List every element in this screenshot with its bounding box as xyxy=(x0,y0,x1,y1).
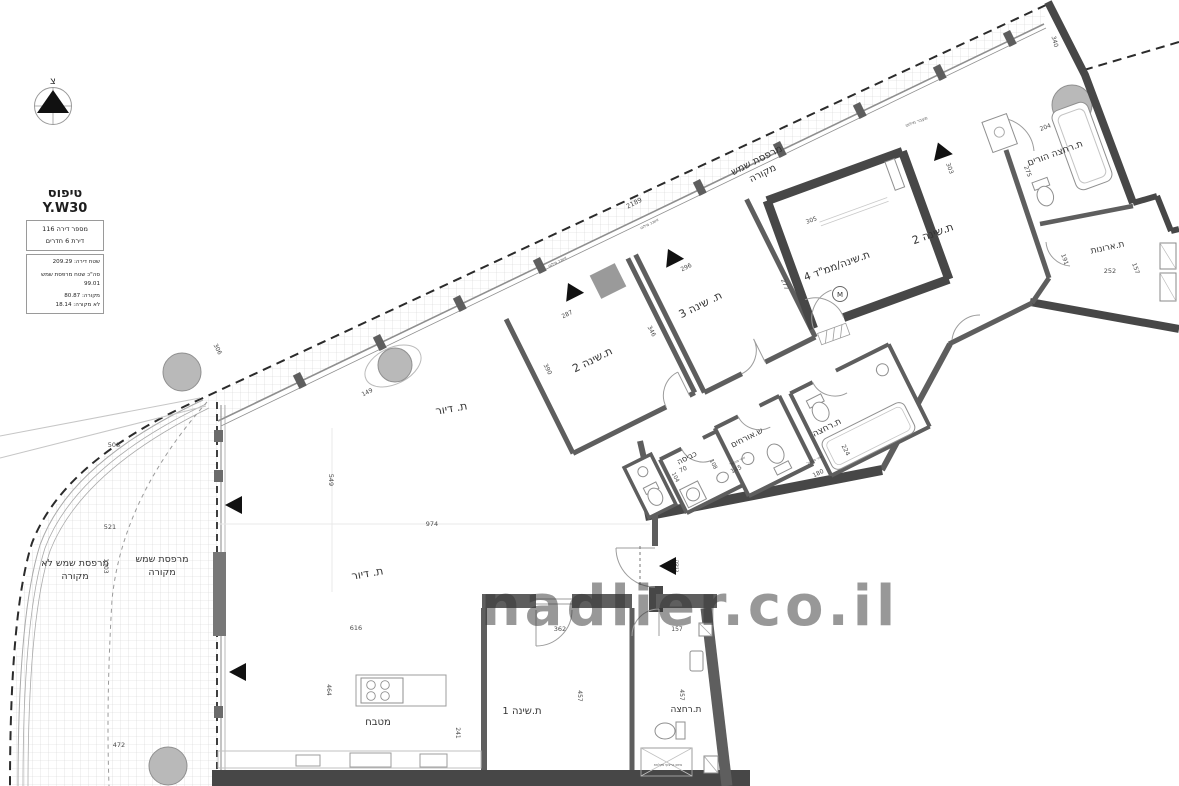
compass-north-label: צ xyxy=(50,76,56,87)
dim-liv-b: 616 xyxy=(350,624,362,632)
dim-closet-d: 191 xyxy=(1059,253,1070,266)
apartment-number: מספר דירה 116 xyxy=(29,224,101,236)
balcony-total-value: 99.01 xyxy=(30,280,100,289)
label-bedroom3: ת. שינה 3 xyxy=(677,289,724,321)
dim-kit-h: 464 xyxy=(325,684,332,696)
dim-liv-w: 974 xyxy=(426,520,438,528)
dim-bal-3: 472 xyxy=(113,741,125,749)
columns xyxy=(149,85,1092,785)
apartment-rooms: דירת 6 חדרים xyxy=(29,236,101,248)
label-balcony-uncov-1: מרפסת שמש לא xyxy=(41,558,109,569)
label-bedroom2-mid: ת.שינה 2 xyxy=(570,344,614,375)
dim-b2m-top: 287 xyxy=(561,309,575,320)
apartment-info-box: מספר דירה 116 דירת 6 חדרים xyxy=(26,220,104,251)
dim-b2m-hl: 390 xyxy=(542,363,554,377)
dim-bal-2: 521 xyxy=(104,523,116,531)
dim-bal-v: 1103 xyxy=(102,558,109,573)
window-marker-icon xyxy=(659,244,684,267)
note-escape-3: מעבר מילוט xyxy=(905,116,929,129)
kitchen-fixtures xyxy=(218,675,481,768)
label-kitchen: מטבח xyxy=(365,717,391,728)
balcony-covered-area: מקורה: 80.87 xyxy=(30,292,100,301)
label-closet-room: ת.ארונות xyxy=(1090,240,1126,257)
bedroom3-walls xyxy=(636,199,816,392)
dim-pb-top: 204 xyxy=(1039,122,1052,133)
sink-icon xyxy=(420,754,447,767)
window-marker-icon xyxy=(225,496,242,514)
note-escape-2: אשנב מילוט xyxy=(639,217,660,231)
note-shower: סימון בריצוף מקלחת xyxy=(654,763,682,767)
mamad-m-symbol: M xyxy=(833,287,848,302)
dim-b3-top: 296 xyxy=(680,262,694,273)
entry-arrow-icon xyxy=(659,557,676,575)
plan-type-title: טיפוס Y.W30 xyxy=(26,186,104,216)
label-living-2: ת. דיור xyxy=(351,564,385,582)
label-living-1: ת. דיור xyxy=(435,399,469,417)
dim-liv-l: 549 xyxy=(327,474,335,486)
window-marker-icon xyxy=(229,663,246,681)
apartment-area: שטח דירה: 209.29 xyxy=(30,258,100,267)
dim-b2m-hr: 346 xyxy=(646,325,658,339)
label-balcony-uncov-2: מקורה xyxy=(61,571,88,582)
dim-b2t-h: 303 xyxy=(944,162,955,175)
dim-b1-d: 241 xyxy=(454,727,461,739)
dim-bb-h: 457 xyxy=(678,689,685,701)
dim-b1-h: 457 xyxy=(576,690,583,702)
window-marker-icon xyxy=(929,139,953,161)
floorplan-canvas: M xyxy=(0,0,1179,786)
dim-closet-h: 157 xyxy=(1130,262,1141,275)
area-info-box: שטח דירה: 209.29 סה"כ שטח מרפסת שמש 99.0… xyxy=(26,254,104,313)
dim-ne: 340 xyxy=(1050,35,1060,48)
title-block: טיפוס Y.W30 מספר דירה 116 דירת 6 חדרים ש… xyxy=(26,186,104,314)
label-bottom-bath: ת.רחצה xyxy=(671,705,702,715)
watermark-text: nadlier.co.il xyxy=(481,574,899,639)
toilet-icon xyxy=(1032,177,1056,208)
dim-mamad-top: 305 xyxy=(805,215,818,226)
balcony-total-label: סה"כ שטח מרפסת שמש xyxy=(30,271,100,280)
label-balcony-cov-1: מרפסת שמש xyxy=(135,554,188,565)
sink-icon xyxy=(982,114,1017,153)
dim-bal-1: 508 xyxy=(108,441,120,449)
mamad-walls xyxy=(767,151,955,345)
label-entrance: כניסה xyxy=(674,560,680,573)
balcony-uncovered-area: לא מקורה: 18.14 xyxy=(30,301,100,310)
label-bedroom4-mamad: ת.שינה/ממ"ד 4 xyxy=(802,249,871,284)
window-marker-icon xyxy=(559,278,584,301)
mamad-m-label: M xyxy=(837,291,843,299)
label-balcony-cov-2: מקורה xyxy=(148,567,175,578)
compass-icon xyxy=(35,88,72,125)
label-bedroom1: ת.שינה 1 xyxy=(502,706,541,717)
dim-liv-top: 149 xyxy=(361,387,375,398)
top-glazing-wall xyxy=(218,24,1046,426)
dim-closet-w: 252 xyxy=(1104,267,1116,275)
guide-lines xyxy=(218,428,650,592)
dim-lw: 306 xyxy=(212,343,224,357)
floorplan-page: M xyxy=(0,0,1179,786)
